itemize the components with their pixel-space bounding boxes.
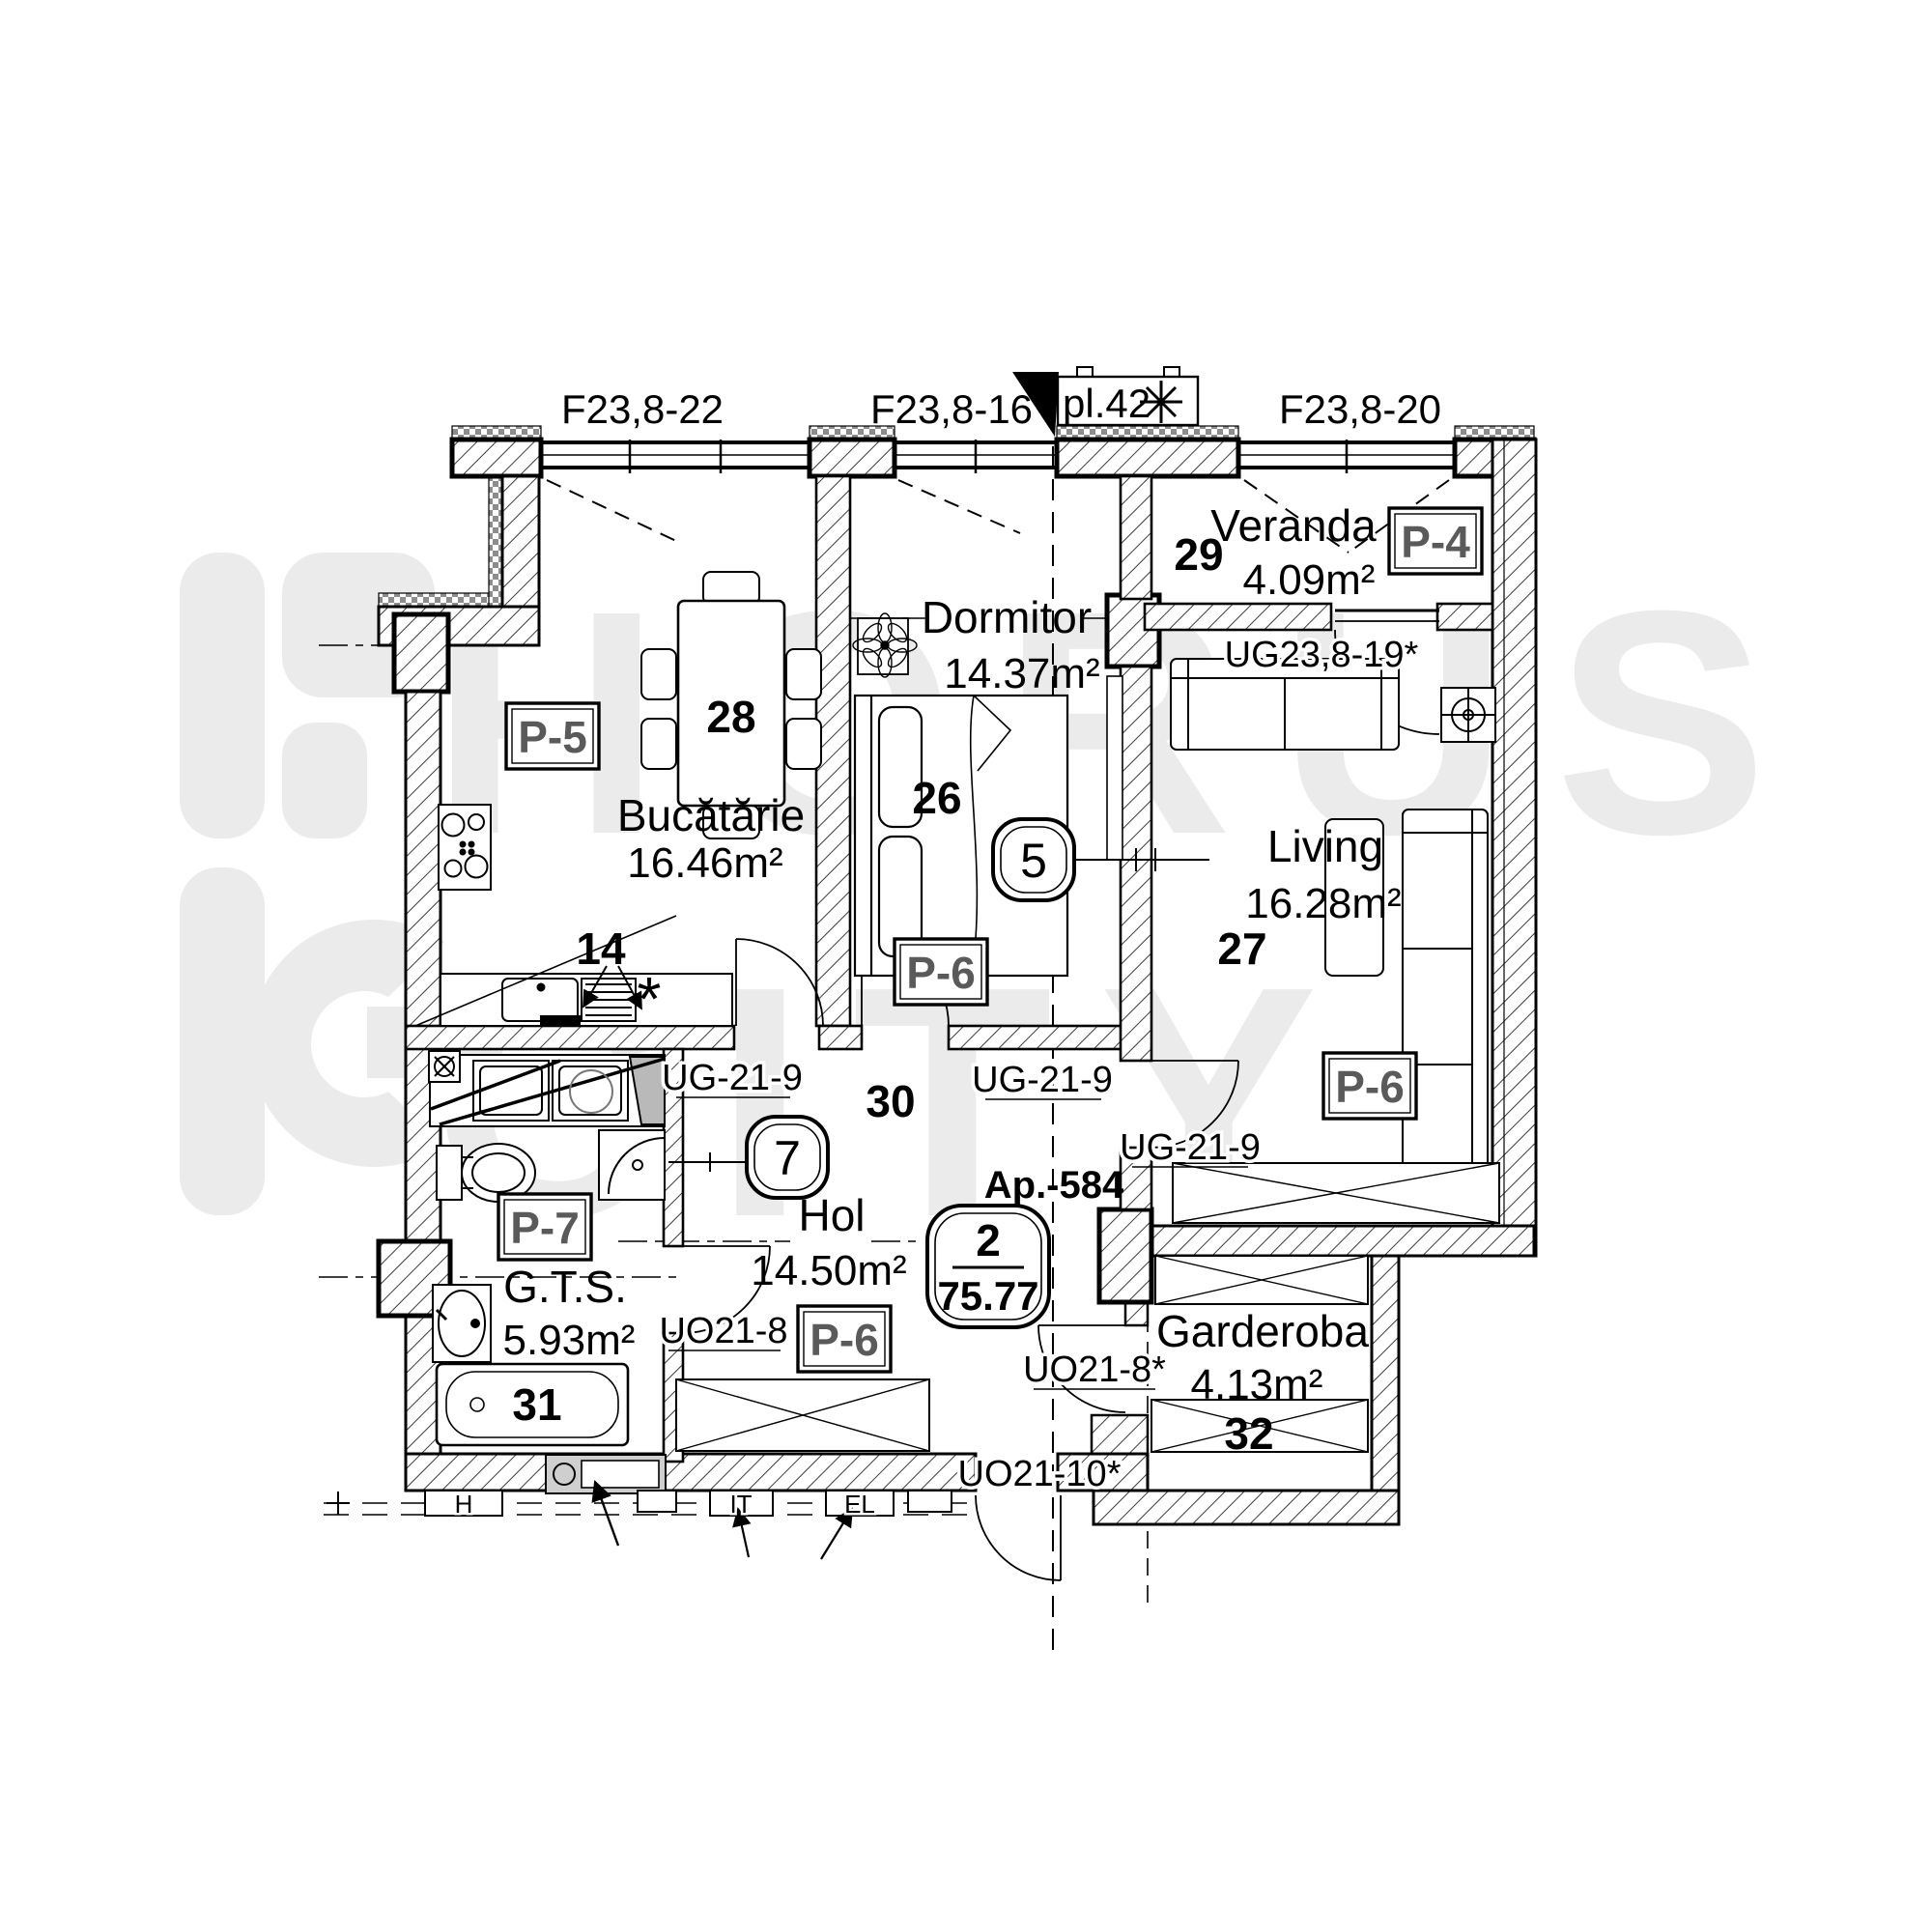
wall-entry-step-upper bbox=[1092, 1415, 1148, 1456]
wall-kitchen-bath bbox=[406, 1026, 734, 1049]
room-area-wardrobe: 4.13m² bbox=[1191, 1361, 1323, 1408]
corner-basin bbox=[599, 1130, 665, 1200]
room-area-bathroom: 5.93m² bbox=[503, 1317, 636, 1364]
room-label-bathroom: G.T.S. bbox=[503, 1262, 627, 1312]
stove bbox=[439, 805, 491, 890]
furniture-no-living: 27 bbox=[1217, 923, 1266, 974]
washing-machines bbox=[430, 1055, 665, 1126]
wall-bedroom-hall bbox=[949, 1026, 1128, 1049]
door-label-veranda: UG23,8-19* bbox=[1225, 635, 1419, 675]
finish-code-living: P-6 bbox=[1335, 1062, 1405, 1112]
label-window-mid: F23,8-16 bbox=[870, 386, 1033, 432]
counter-no-kitchen: 14 bbox=[576, 923, 626, 974]
wall-pier-topmid bbox=[810, 440, 895, 476]
living-wardrobe bbox=[1173, 1163, 1499, 1223]
furniture-no-wardrobe: 32 bbox=[1224, 1408, 1273, 1459]
furniture-no-hall: 30 bbox=[866, 1076, 915, 1126]
label-window-right: F23,8-20 bbox=[1279, 386, 1441, 432]
finish-box-hall: P-6 bbox=[798, 1306, 891, 1372]
finish-box-bathroom: P-7 bbox=[498, 1194, 591, 1260]
hall-wardrobe bbox=[676, 1379, 929, 1451]
wall-veranda-living-left bbox=[1145, 604, 1331, 630]
axis-number-hall: 7 bbox=[774, 1131, 801, 1185]
niche-label-el: EL bbox=[844, 1490, 875, 1519]
wall-veranda-living-right bbox=[1437, 604, 1492, 630]
door-entrance bbox=[976, 1495, 1061, 1580]
room-area-veranda: 4.09m² bbox=[1243, 556, 1376, 604]
axis-bubble-living: 5 bbox=[993, 819, 1074, 900]
label-window-left: F23,8-22 bbox=[561, 386, 724, 432]
wall-block-hall-corner bbox=[1099, 1209, 1151, 1302]
radiator bbox=[1107, 676, 1122, 860]
wall-wardrobe-right bbox=[1372, 1256, 1399, 1524]
furniture-no-bathroom: 31 bbox=[512, 1379, 561, 1430]
room-area-hall: 14.50m² bbox=[751, 1247, 906, 1294]
door-label-kitchen: UG-21-9 bbox=[662, 1058, 803, 1098]
furniture-no-kitchen: 28 bbox=[706, 692, 755, 742]
wall-left-upper bbox=[502, 476, 539, 618]
room-label-bedroom: Dormitor bbox=[922, 592, 1092, 642]
facade-labels: F23,8-22 F23,8-16 pl.42 F23,8-20 bbox=[561, 381, 1441, 432]
room-label-wardrobe: Garderoba bbox=[1156, 1306, 1369, 1356]
finish-code-kitchen: P-5 bbox=[518, 712, 587, 762]
finish-box-bedroom: P-6 bbox=[895, 939, 987, 1005]
sofa-right bbox=[1403, 810, 1488, 1204]
room-label-veranda: Veranda bbox=[1210, 500, 1377, 551]
wall-pier-ac bbox=[1057, 440, 1238, 476]
finish-code-hall: P-6 bbox=[810, 1315, 879, 1365]
door-label-entrance: UO21-10* bbox=[958, 1454, 1122, 1494]
room-area-bedroom: 14.37m² bbox=[944, 650, 1099, 697]
finish-code-bathroom: P-7 bbox=[510, 1203, 580, 1253]
door-label-bedroom: UG-21-9 bbox=[972, 1060, 1113, 1100]
niche-label-it: IT bbox=[729, 1490, 752, 1519]
wall-stub-kitchen-door bbox=[819, 1026, 862, 1049]
window-kitchen bbox=[541, 440, 810, 541]
window-bedroom bbox=[895, 440, 1057, 533]
finish-box-living: P-6 bbox=[1323, 1053, 1416, 1119]
wash-basin bbox=[433, 1285, 491, 1362]
finish-box-veranda: P-4 bbox=[1389, 508, 1482, 574]
room-area-kitchen: 16.46m² bbox=[627, 839, 782, 887]
wall-wardrobe-bottom bbox=[1094, 1491, 1399, 1524]
apartment-id: Ap.-584 bbox=[984, 1164, 1124, 1207]
wall-hall-bottom bbox=[664, 1454, 976, 1491]
wall-veranda-left bbox=[1121, 476, 1151, 599]
valve-icon bbox=[429, 1051, 460, 1082]
label-ac-unit: pl.42 bbox=[1063, 381, 1151, 426]
wall-living-bottom bbox=[1151, 1226, 1534, 1256]
niche-label-h: H bbox=[455, 1490, 473, 1519]
wall-right bbox=[1492, 440, 1536, 1256]
door-label-bathroom: UO21-8 bbox=[659, 1311, 787, 1351]
apartment-total-area: 75.77 bbox=[937, 1273, 1038, 1319]
door-label-living: UG-21-9 bbox=[1120, 1127, 1261, 1168]
wardrobe-top-unit bbox=[1155, 1256, 1368, 1304]
finish-box-kitchen: P-5 bbox=[506, 703, 599, 769]
axis-bubble-hall: 7 bbox=[747, 1117, 828, 1198]
floor-lamp-icon bbox=[1441, 688, 1495, 742]
door-label-wardrobe: UO21-8* bbox=[1023, 1350, 1166, 1390]
axis-number-living: 5 bbox=[1020, 834, 1047, 888]
furniture-no-bedroom: 26 bbox=[912, 773, 961, 823]
finish-code-bedroom: P-6 bbox=[906, 948, 976, 998]
furniture-no-veranda: 29 bbox=[1174, 529, 1223, 580]
room-area-living: 16.28m² bbox=[1245, 880, 1401, 927]
finish-code-veranda: P-4 bbox=[1401, 517, 1470, 567]
boiler-symbol: * bbox=[638, 964, 662, 1034]
wall-block-left-step bbox=[394, 614, 448, 692]
room-label-living: Living bbox=[1267, 821, 1383, 871]
floorplan-canvas: { "watermark": { "brand_top": "HORUS", "… bbox=[0, 0, 1932, 1932]
wall-pier-topleft bbox=[452, 440, 541, 476]
room-label-kitchen: Bucătărie bbox=[617, 790, 805, 840]
apartment-room-count: 2 bbox=[976, 1215, 1001, 1265]
floorplan-svg: HORUS CITY bbox=[0, 0, 1932, 1932]
